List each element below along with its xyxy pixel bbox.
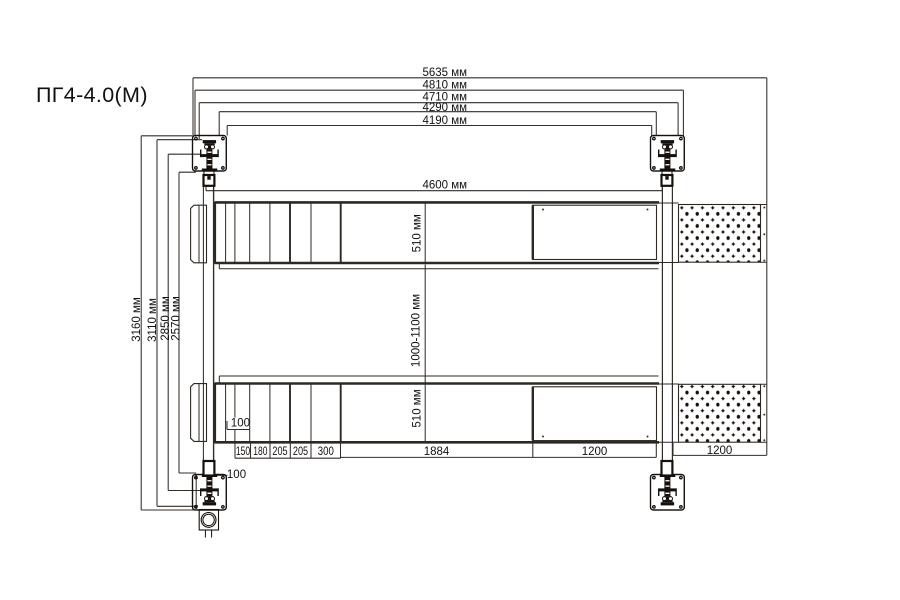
svg-text:5635 мм: 5635 мм	[423, 67, 468, 79]
svg-text:100: 100	[227, 469, 246, 481]
svg-text:3160 мм: 3160 мм	[131, 297, 143, 342]
svg-text:205: 205	[293, 446, 308, 458]
svg-text:510 мм: 510 мм	[412, 214, 424, 252]
svg-text:4810 мм: 4810 мм	[423, 80, 468, 92]
svg-text:1200: 1200	[582, 446, 608, 458]
svg-text:4600 мм: 4600 мм	[423, 180, 468, 192]
svg-text:1884: 1884	[424, 446, 450, 458]
svg-text:4290 мм: 4290 мм	[423, 102, 468, 114]
svg-text:1200: 1200	[707, 445, 733, 457]
svg-text:4190 мм: 4190 мм	[423, 115, 468, 127]
svg-text:3110 мм: 3110 мм	[147, 298, 159, 342]
svg-text:150: 150	[236, 446, 250, 458]
svg-text:ПГ4-4.0(М): ПГ4-4.0(М)	[36, 83, 148, 107]
svg-text:2570 мм: 2570 мм	[171, 296, 183, 341]
svg-text:300: 300	[318, 446, 334, 458]
svg-text:180: 180	[253, 446, 267, 458]
svg-text:100: 100	[231, 418, 250, 430]
svg-text:510 мм: 510 мм	[412, 389, 424, 427]
svg-text:1000-1100 мм: 1000-1100 мм	[411, 294, 423, 367]
svg-text:205: 205	[272, 446, 287, 458]
